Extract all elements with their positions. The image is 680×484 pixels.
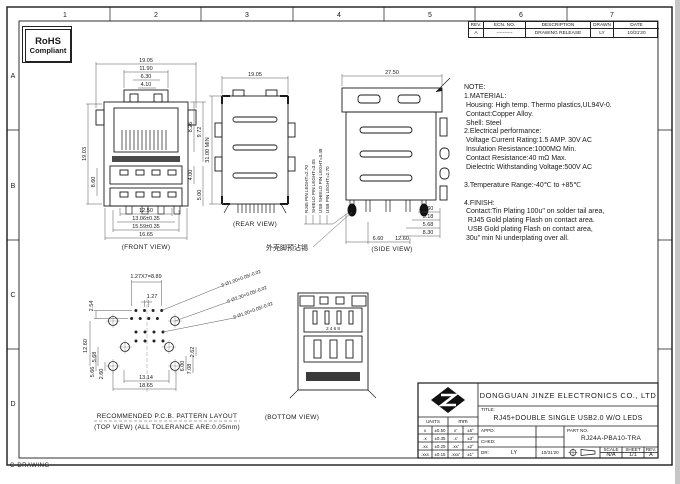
pcb-callout-2: 6-Ø2.30+0.05/-0.02 <box>227 285 269 305</box>
scale-value: N/A <box>600 452 622 458</box>
dim-pcb-l4: 2.60 <box>99 369 105 380</box>
sheet-value: 1/1 <box>622 452 644 458</box>
note-line <box>464 173 670 182</box>
rear-view-drawing <box>215 90 295 213</box>
dim-side-b2: 12.60 <box>395 236 409 242</box>
note-line: Contact:Copper Alloy. <box>464 111 670 120</box>
dim-pcb-r1: 2.62 <box>190 347 196 358</box>
dim-front-bot2: 13.06±0.35 <box>132 216 160 222</box>
dim-pcb-colgap: 1.27 <box>147 294 158 300</box>
dim-front-right2: 9.72 <box>197 127 203 138</box>
tol-cell: .xxx' <box>448 450 463 458</box>
grid-top-3: 3 <box>245 12 249 19</box>
note-line: USB Gold plating Flash on contact area, <box>464 226 670 235</box>
tol-cell: .xx' <box>448 442 463 450</box>
pin-label-usb: USB PIN LEGHT=2.70 <box>325 166 330 213</box>
note-line: 4.FINISH: <box>464 200 670 209</box>
dim-rear-width: 19.05 <box>248 72 262 78</box>
dim-front-top1: 19.05 <box>139 58 153 64</box>
pcb-caption-line1: RECOMMENDED P.C.B. PATTERN LAYOUT <box>97 413 238 420</box>
dim-side-r1: 2.60 <box>423 206 434 212</box>
tol-cell: .xxx <box>418 450 432 458</box>
dim-side-r4: 8.30 <box>423 230 434 236</box>
grid-top-4: 4 <box>337 12 341 19</box>
note-line: RJ45 Gold plating Flash on contact area. <box>464 217 670 226</box>
rev-value: A <box>644 452 658 458</box>
pcb-dims: 1.27X7=8.89 2.54 1.27 8-Ø1.00+0.05/-0.02… <box>83 269 274 431</box>
pin-label-shield: SHIELD PIN LEGHT=3.05 <box>311 159 316 213</box>
dr-date: 10/31'20 <box>536 447 564 458</box>
dim-front-left2: 8.60 <box>91 177 97 188</box>
revision-table: REV. ECN. NO. DESCRIPTION DRAWN DATE A -… <box>468 21 658 38</box>
usb-hole-dots <box>135 331 165 343</box>
rev-header-description: DESCRIPTION <box>526 22 591 29</box>
rev-cell-ecn: ---------- <box>484 29 526 37</box>
rohs-line2: Compliant <box>30 47 67 55</box>
rev-header-rev: REV. <box>469 22 484 29</box>
dim-pcb-b2: 18.65 <box>139 383 153 389</box>
note-line: 30u" min Ni underplating over all. <box>464 235 670 244</box>
tol-cell: x' <box>448 426 463 434</box>
dr-value: LY <box>494 447 534 458</box>
tol-cell: ±0.25 <box>432 442 448 450</box>
projection-symbol-icon <box>568 448 598 457</box>
rohs-stamp: RoHS Compliant <box>22 26 72 63</box>
rev-header-drawn: DRAWN <box>591 22 614 29</box>
note-line: Housing: High temp. Thermo plastics,UL94… <box>464 102 670 111</box>
dr-label: DR: <box>481 450 489 455</box>
shield-holes <box>106 314 182 373</box>
dim-front-right1: 8.26 <box>188 122 194 133</box>
dim-pcb-rowgap: 2.54 <box>89 301 95 312</box>
dim-side-r3: 5.68 <box>423 222 434 228</box>
tol-cell: ±0.50 <box>432 426 448 434</box>
note-line: Dielectric Withstanding Voltage:500V AC <box>464 164 670 173</box>
units-label: UNITS <box>418 417 448 426</box>
scan-edge <box>675 0 680 484</box>
note-line: 1.MATERIAL: <box>464 93 670 102</box>
tol-cell: ±0.15 <box>432 450 448 458</box>
note-line: Contact Resistance:40 mΩ Max. <box>464 155 670 164</box>
note-line: Shell: Steel <box>464 120 670 129</box>
dim-front-bot1: 12.50 <box>139 208 153 214</box>
dim-front-bot4: 16.65 <box>139 232 153 238</box>
units-value: mm <box>448 417 478 426</box>
dim-front-top2: 11.90 <box>139 66 152 72</box>
front-view-drawing <box>96 90 196 214</box>
grid-top-7: 7 <box>610 12 614 19</box>
side-view-dims: 27.50 2.60 5.18 5.68 8.30 6.60 12.60 (SI… <box>266 70 433 253</box>
bottom-view-label: (BOTTOM VIEW) <box>265 414 319 421</box>
grid-top-5: 5 <box>428 12 432 19</box>
pcb-callout-3: 8-Ø1.00+0.05/-0.02 <box>233 301 275 321</box>
rev-cell-description: DRAWING RELEASE <box>526 29 591 37</box>
bottom-view-pin-numbers: 2 4 6 8 <box>326 326 340 331</box>
notes-block: NOTE: 1.MATERIAL: Housing: High temp. Th… <box>464 84 670 244</box>
rev-cell-rev: A <box>469 29 484 37</box>
tol-cell: ±3° <box>463 434 478 442</box>
rohs-stamp-inner: RoHS Compliant <box>25 29 71 62</box>
pcb-caption-line2: (TOP VIEW) (ALL TOLERANCE ARE:0.05mm) <box>94 424 240 431</box>
rev-header-date: DATE <box>614 22 659 29</box>
rear-view-dim-lines <box>209 76 288 204</box>
dim-rear-height: 31.00 MIN <box>205 137 211 162</box>
rev-header-ecn: ECN. NO. <box>484 22 526 29</box>
pin-label-usb-shield: USB SHIELD PIN LEGHT=3.48 <box>318 148 323 213</box>
grid-left-c: C <box>10 292 15 299</box>
appd-label: APPD: <box>481 428 495 433</box>
shell-pretin-callout: 外壳脚预沾锡 <box>266 243 308 252</box>
pcb-callout-1: 8-Ø1.00+0.05/-0.02 <box>221 269 263 289</box>
grid-top-6: 6 <box>519 12 523 19</box>
tol-cell: x <box>418 426 432 434</box>
dim-front-left1: 19.03 <box>82 147 88 161</box>
tol-cell: .x <box>418 434 432 442</box>
dim-side-width: 27.50 <box>385 70 399 76</box>
dim-pcb-l2: 5.68 <box>92 352 98 363</box>
company-name: DONGGUAN JINZE ELECTRONICS CO., LTD <box>478 385 658 405</box>
dim-front-right3: 4.00 <box>188 170 194 181</box>
note-line: Voltage Current Rating:1.5 AMP. 30V AC <box>464 137 670 146</box>
corner-note: C-DRAWING <box>10 463 50 469</box>
pin-label-rj45: RJ45 PIN LEGHT=2.70 <box>304 165 309 213</box>
drawing-title: RJ45+DOUBLE SINGLE USB2.0 W/O LEDS <box>478 411 658 425</box>
side-view-drawing <box>342 78 450 217</box>
bottom-view-drawing <box>290 293 376 398</box>
side-view-label: (SIDE VIEW) <box>371 246 412 253</box>
notes-heading: NOTE: <box>464 84 670 93</box>
note-line <box>464 191 670 200</box>
company-logo <box>431 387 465 413</box>
rj45-hole-dots <box>130 309 163 320</box>
dim-pcb-l1: 12.60 <box>83 339 89 353</box>
dim-pcb-b1: 13.14 <box>139 375 153 381</box>
grid-top-2: 2 <box>154 12 158 19</box>
grid-top-1: 1 <box>63 12 67 19</box>
drawing-sheet: 1 2 3 4 5 6 7 A B C D <box>0 0 680 484</box>
dim-side-b1: 6.60 <box>373 236 384 242</box>
grid-left-d: D <box>10 401 15 408</box>
dim-pcb-pitch: 1.27X7=8.89 <box>130 274 161 280</box>
dim-side-r2: 5.18 <box>423 214 434 220</box>
tol-cell: ±0.35 <box>432 434 448 442</box>
part-number: RJ24A-PBA10-TRA <box>564 432 658 445</box>
grid-left-a: A <box>11 73 16 80</box>
rear-view-label: (REAR VIEW) <box>233 221 277 228</box>
note-line: 3.Temperature Range:-40℃ to +85℃ <box>464 182 670 191</box>
grid-left-b: B <box>11 183 16 190</box>
tol-cell: ±2° <box>463 442 478 450</box>
dim-pcb-r2: 6.00 <box>180 361 186 372</box>
tol-cell: ±5° <box>463 426 478 434</box>
dim-front-right4: 5.00 <box>197 190 203 201</box>
chkd-label: CHKD: <box>481 439 495 444</box>
tol-cell: .x' <box>448 434 463 442</box>
dim-pcb-r3: 7.08 <box>187 364 193 375</box>
dim-front-bot3: 15.59±0.35 <box>132 224 160 230</box>
dim-pcb-l3: 5.66 <box>90 367 96 378</box>
dim-front-top4: 4.10 <box>141 82 152 88</box>
tol-cell: ±1° <box>463 450 478 458</box>
note-line: Contact:Tin Plating 100u" on solder tail… <box>464 208 670 217</box>
note-line: 2.Electrical performance: <box>464 128 670 137</box>
pcb-dim-lines <box>90 280 240 421</box>
front-view-label: (FRONT VIEW) <box>122 244 171 251</box>
dim-front-top3: 6.30 <box>141 74 152 80</box>
rev-cell-date: 10/31'20 <box>614 29 659 37</box>
rev-cell-drawn: LY <box>591 29 614 37</box>
tol-cell: .xx <box>418 442 432 450</box>
note-line: Insulation Resistance:1000MΩ Min. <box>464 146 670 155</box>
pin-length-labels: RJ45 PIN LEGHT=2.70 SHIELD PIN LEGHT=3.0… <box>304 148 352 224</box>
